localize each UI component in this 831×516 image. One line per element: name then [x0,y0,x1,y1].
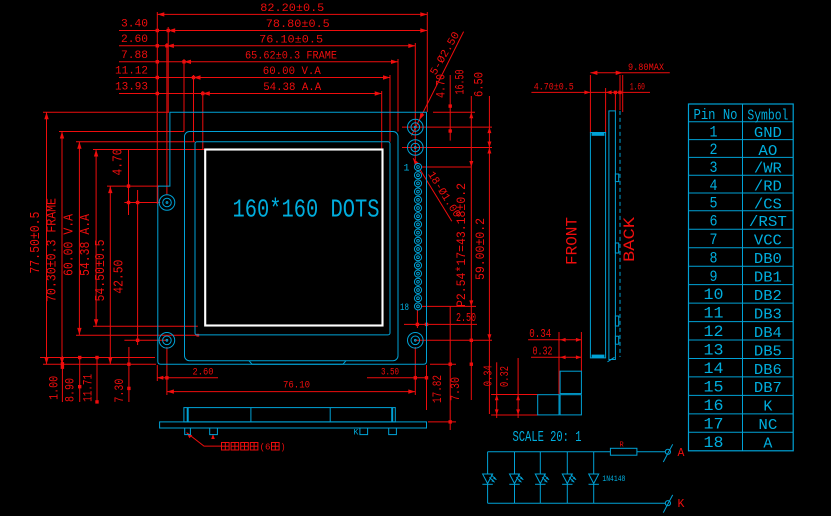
svg-text:12: 12 [704,323,724,341]
svg-text:2.60: 2.60 [121,34,148,46]
svg-text:7: 7 [710,231,718,249]
svg-text:K: K [763,399,772,416]
svg-text:54.38 A.A: 54.38 A.A [79,213,94,276]
svg-text:0.34: 0.34 [481,365,495,386]
svg-text:1: 1 [404,164,410,175]
svg-text:P2.54*17=43.18±0.2: P2.54*17=43.18±0.2 [454,183,469,307]
svg-text:/CS: /CS [754,196,782,213]
svg-text:DB1: DB1 [754,270,782,287]
svg-text:4.70: 4.70 [434,74,449,98]
svg-text:70.30±0.3 FRAME: 70.30±0.3 FRAME [46,198,61,302]
svg-text:0.32: 0.32 [533,345,553,359]
svg-text:1N4148: 1N4148 [602,475,625,484]
svg-text:59.00±0.2: 59.00±0.2 [473,218,488,280]
svg-text:DB0: DB0 [754,251,782,268]
svg-text:VCC: VCC [754,233,782,250]
svg-text:DB6: DB6 [754,362,782,379]
svg-text:1: 1 [710,123,718,141]
svg-text:7.30: 7.30 [112,379,127,403]
svg-text:SCALE 20: 1: SCALE 20: 1 [513,429,582,446]
svg-text:1.00: 1.00 [46,376,61,400]
svg-text:K: K [354,429,359,438]
svg-text:76.10±0.5: 76.10±0.5 [259,34,323,46]
svg-text:BACK: BACK [621,216,639,262]
svg-text:/RD: /RD [754,179,782,196]
svg-text:Symbol: Symbol [747,107,788,124]
svg-text:78.80±0.5: 78.80±0.5 [266,19,330,31]
svg-text:DB2: DB2 [754,288,782,305]
svg-text:FRONT: FRONT [563,217,581,265]
svg-text:18: 18 [400,303,409,314]
svg-text:0.32: 0.32 [498,366,512,387]
svg-text:7.30: 7.30 [448,377,463,401]
svg-text:82.20±0.5: 82.20±0.5 [260,3,324,15]
svg-text:9: 9 [710,268,718,286]
svg-text:2.60: 2.60 [193,367,214,378]
svg-text:4.70: 4.70 [112,149,127,176]
svg-text:Pin No: Pin No [694,107,738,124]
svg-text:K: K [678,498,685,511]
svg-text:76.10: 76.10 [283,380,310,391]
svg-text:6.50: 6.50 [472,72,487,97]
svg-text:8: 8 [710,249,718,267]
svg-text:1.60: 1.60 [630,82,645,93]
svg-text:65.62±0.3 FRAME: 65.62±0.3 FRAME [245,50,337,62]
svg-text:3: 3 [710,159,718,177]
svg-text:DB5: DB5 [754,343,782,360]
svg-text:7.88: 7.88 [121,50,148,62]
svg-text:18: 18 [704,434,724,452]
svg-text:A: A [763,436,772,453]
svg-text:17.82: 17.82 [430,375,445,403]
svg-text:11.12: 11.12 [115,66,148,78]
svg-text:54.50±0.5: 54.50±0.5 [94,240,109,302]
svg-text:2: 2 [710,141,718,159]
svg-text:3.40: 3.40 [121,19,148,31]
svg-text:9.80MAX: 9.80MAX [628,63,664,74]
svg-text:DB7: DB7 [754,380,782,397]
svg-text:3.50: 3.50 [381,367,399,378]
svg-text:(6: (6 [260,442,271,453]
svg-text:NC: NC [758,417,777,434]
svg-text:16.50: 16.50 [453,70,468,95]
svg-text:13.93: 13.93 [115,82,148,94]
svg-text:15: 15 [704,379,724,397]
svg-text:0.34: 0.34 [529,327,551,341]
svg-text:14: 14 [704,360,724,378]
svg-text:AO: AO [758,143,777,160]
svg-text:17: 17 [704,416,724,434]
svg-text:2.50: 2.50 [456,311,476,325]
svg-text:DB3: DB3 [754,306,782,323]
svg-text:42.50: 42.50 [112,260,127,294]
svg-text:6: 6 [710,212,718,230]
svg-text:60.00 V.A: 60.00 V.A [63,213,78,276]
svg-text:8.90: 8.90 [63,378,78,402]
svg-text:/RST: /RST [749,214,787,231]
svg-text:10: 10 [704,286,724,304]
svg-text:16: 16 [704,397,724,415]
svg-text:4: 4 [710,177,718,195]
svg-text:54.38 A.A: 54.38 A.A [263,82,321,94]
svg-text:11.71: 11.71 [81,374,96,402]
svg-text:GND: GND [754,125,782,142]
svg-text:13: 13 [704,342,724,360]
svg-text:/WR: /WR [754,161,782,178]
svg-text:): ) [281,442,286,453]
svg-text:4.70±0.5: 4.70±0.5 [534,82,574,93]
svg-text:11: 11 [704,305,724,323]
svg-text:A: A [678,447,685,460]
svg-text:160*160 DOTS: 160*160 DOTS [233,195,380,225]
svg-text:77.50±0.5: 77.50±0.5 [29,212,44,274]
svg-text:DB4: DB4 [754,325,782,342]
svg-text:5: 5 [710,195,718,213]
svg-text:60.00 V.A: 60.00 V.A [263,66,321,78]
